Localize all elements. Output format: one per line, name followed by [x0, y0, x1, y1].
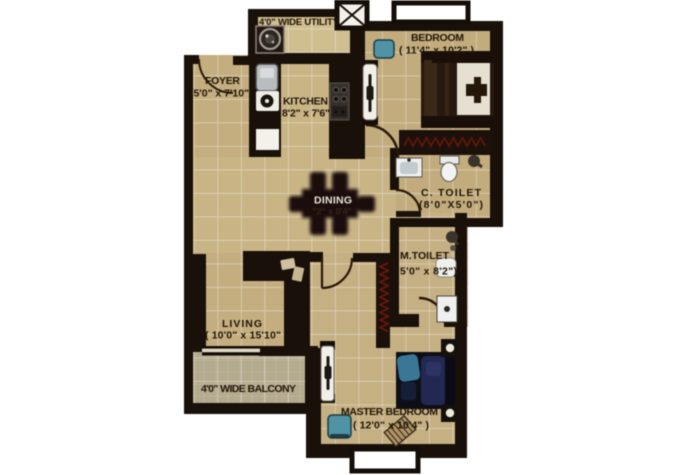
svg-text:FOYER: FOYER: [205, 75, 240, 87]
svg-text:5'0" x 8'2"): 5'0" x 8'2"): [400, 266, 457, 278]
svg-text:( 11'4" x 10'2" ): ( 11'4" x 10'2" ): [399, 45, 474, 57]
svg-text:DINING: DINING: [314, 195, 352, 207]
svg-text:( 10'0" x 15'10": ( 10'0" x 15'10": [205, 330, 281, 342]
svg-text:8'2" x 7'6": 8'2" x 7'6": [282, 108, 330, 120]
svg-text:4'0" WIDE UTILITY: 4'0" WIDE UTILITY: [259, 17, 340, 28]
svg-text:4'0" WIDE BALCONY: 4'0" WIDE BALCONY: [201, 383, 296, 395]
svg-text:(5'0" x 7'10": (5'0" x 7'10": [190, 88, 249, 100]
svg-text:KITCHEN: KITCHEN: [283, 96, 328, 108]
svg-text:(8'0"X5'0"): (8'0"X5'0"): [419, 199, 483, 211]
svg-text:BEDROOM: BEDROOM: [411, 32, 464, 44]
svg-text:"2" x 8'4": "2" x 8'4": [312, 207, 352, 218]
svg-text:( 12'0" x 10'4" ): ( 12'0" x 10'4" ): [353, 420, 429, 432]
svg-text:MASTER BEDROOM: MASTER BEDROOM: [341, 406, 438, 418]
svg-text:C. TOILET: C. TOILET: [421, 187, 482, 199]
svg-text:M.TOILET: M.TOILET: [400, 250, 450, 262]
svg-text:LIVING: LIVING: [222, 318, 262, 330]
